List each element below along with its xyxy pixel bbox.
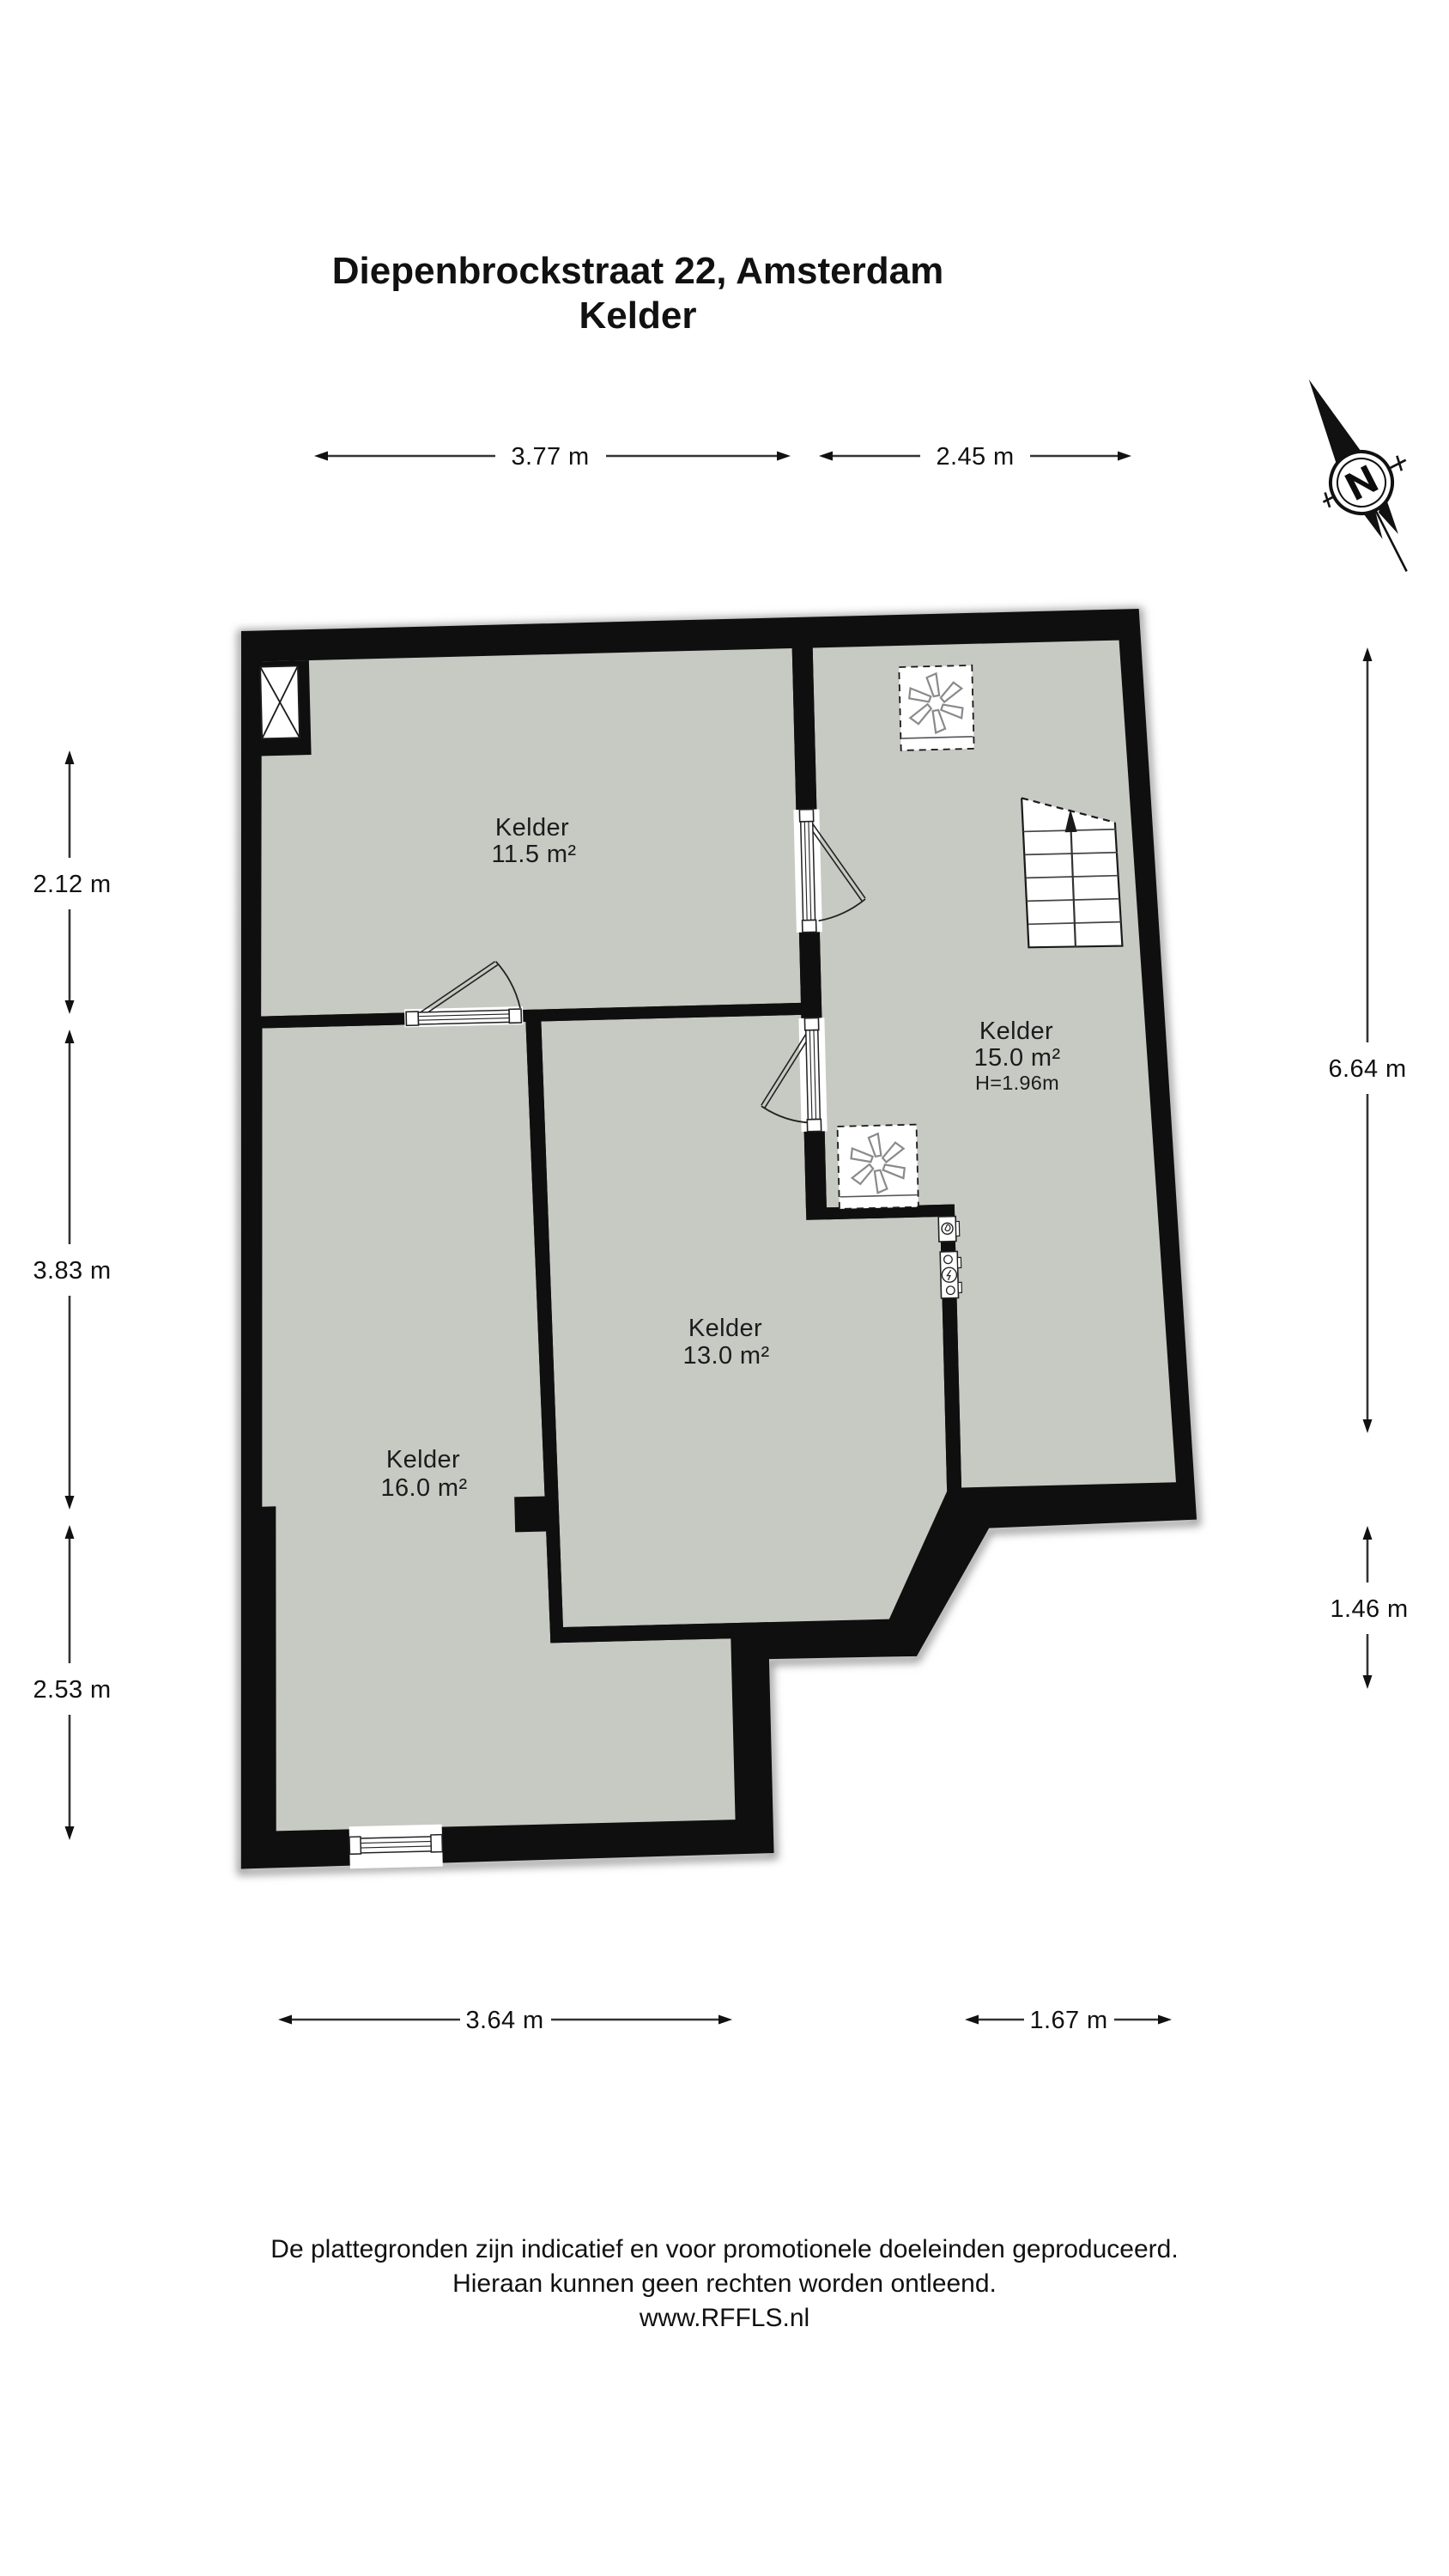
svg-text:3.77 m: 3.77 m	[511, 443, 589, 471]
svg-text:3.83 m: 3.83 m	[33, 1257, 111, 1285]
svg-text:Kelder: Kelder	[386, 1446, 460, 1473]
svg-text:1.67 m: 1.67 m	[1029, 2007, 1107, 2034]
svg-text:1.46 m: 1.46 m	[1330, 1595, 1408, 1623]
svg-text:Hieraan kunnen geen rechten wo: Hieraan kunnen geen rechten worden ontle…	[452, 2269, 997, 2298]
svg-text:13.0 m²: 13.0 m²	[682, 1342, 769, 1370]
svg-text:11.5 m²: 11.5 m²	[492, 841, 577, 868]
svg-text:Diepenbrockstraat 22, Amsterda: Diepenbrockstraat 22, Amsterdam	[332, 250, 943, 292]
svg-text:Kelder: Kelder	[495, 814, 569, 841]
svg-text:Kelder: Kelder	[979, 1018, 1053, 1045]
svg-text:H=1.96m: H=1.96m	[975, 1072, 1059, 1094]
svg-text:3.64 m: 3.64 m	[465, 2007, 543, 2034]
svg-text:www.RFFLS.nl: www.RFFLS.nl	[639, 2304, 809, 2332]
svg-text:16.0 m²: 16.0 m²	[380, 1474, 467, 1502]
svg-text:2.53 m: 2.53 m	[33, 1676, 111, 1704]
svg-text:6.64 m: 6.64 m	[1328, 1055, 1406, 1083]
svg-text:Kelder: Kelder	[579, 295, 697, 337]
svg-text:2.45 m: 2.45 m	[936, 443, 1014, 471]
svg-text:De plattegronden zijn indicati: De plattegronden zijn indicatief en voor…	[270, 2235, 1178, 2263]
svg-text:2.12 m: 2.12 m	[33, 871, 111, 898]
svg-text:Kelder: Kelder	[688, 1315, 762, 1342]
svg-text:15.0 m²: 15.0 m²	[973, 1044, 1060, 1072]
